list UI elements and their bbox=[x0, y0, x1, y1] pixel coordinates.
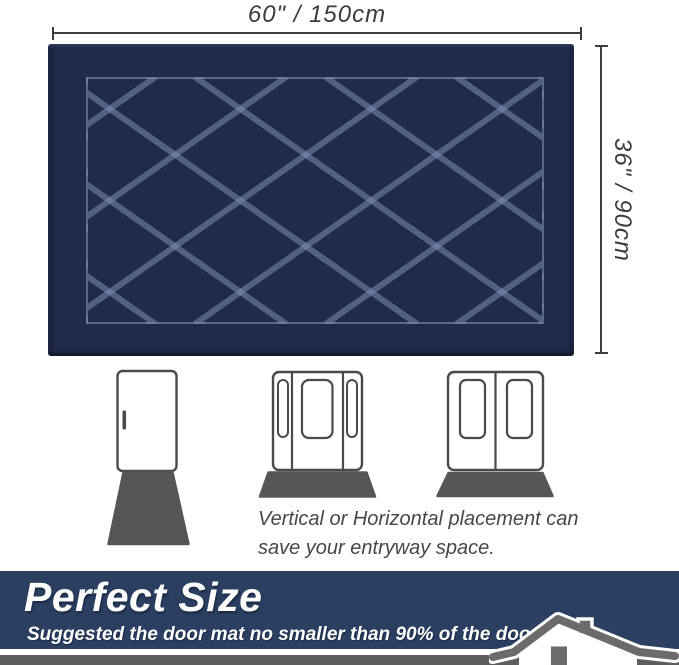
horizontal-door-mat bbox=[260, 473, 375, 497]
product-infographic: 60" / 150cm 36" / 90cm Vertical bbox=[0, 0, 679, 665]
height-dimension-line bbox=[600, 45, 602, 354]
vertical-door-mat bbox=[109, 473, 189, 545]
sidelight-door-illustration bbox=[255, 368, 380, 500]
height-dimension-label: 36" / 90cm bbox=[605, 45, 639, 354]
house-door bbox=[550, 645, 569, 665]
placement-caption: Vertical or Horizontal placement can sav… bbox=[258, 505, 579, 563]
caption-line-2: save your entryway space. bbox=[258, 534, 579, 563]
door-handle bbox=[123, 411, 127, 430]
horizontal-door-mat bbox=[438, 473, 553, 496]
width-dimension-line bbox=[52, 32, 582, 34]
dimension-tick bbox=[52, 27, 54, 40]
door-panel bbox=[118, 371, 177, 471]
house-icon bbox=[489, 585, 679, 665]
door-mat-product bbox=[48, 44, 574, 356]
caption-line-1: Vertical or Horizontal placement can bbox=[258, 505, 579, 534]
dimension-tick bbox=[580, 27, 582, 40]
width-dimension-label: 60" / 150cm bbox=[52, 1, 582, 29]
double-door-illustration bbox=[430, 368, 560, 498]
door-frame bbox=[273, 372, 362, 470]
single-door-illustration bbox=[100, 368, 195, 548]
mat-diamond-pattern bbox=[86, 77, 544, 324]
